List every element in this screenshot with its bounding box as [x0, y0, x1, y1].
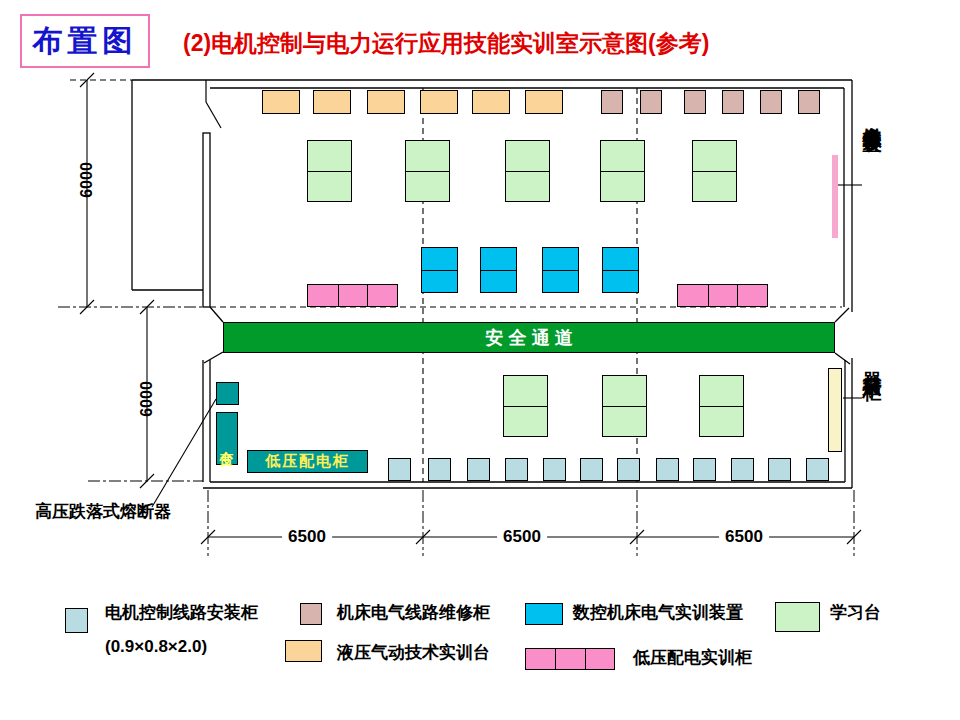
transformer-platform-box: 变台 — [216, 412, 238, 465]
dim-bay-1: 6500 — [282, 527, 332, 547]
lv-distribution-panel-box: 低压配电柜 — [247, 450, 368, 473]
dim-top-room-6000: 6000 — [78, 135, 98, 225]
dimension-lines — [80, 73, 861, 544]
dim-bay-3: 6500 — [719, 527, 769, 547]
walls — [132, 80, 852, 488]
corner-label-box: 布置图 — [20, 14, 150, 68]
corner-label: 布置图 — [33, 21, 138, 62]
multimedia-device-label: 多媒体教学装置 — [863, 112, 882, 119]
entry-door — [206, 80, 221, 128]
legend-install-label: 电机控制线路安装柜 — [105, 601, 258, 624]
legend-repair-label: 机床电气线路维修柜 — [337, 601, 490, 624]
safety-corridor-band: 安全通道 — [223, 322, 835, 353]
floor-plan-page: 安全通道 变台 低压配电柜 布置图 (2)电机控制与电力运行应用技能实训室示意图… — [0, 0, 960, 720]
lv-distribution-panel-label: 低压配电柜 — [265, 452, 350, 471]
dim-bay-2: 6500 — [497, 527, 547, 547]
display-cabinet-label: 器材展示柜 — [863, 356, 882, 371]
page-title: (2)电机控制与电力运行应用技能实训室示意图(参考) — [183, 28, 709, 59]
legend-install-size: (0.9×0.8×2.0) — [105, 637, 207, 657]
legend-cnc-label: 数控机床电气实训装置 — [573, 601, 743, 624]
dim-bottom-room-6000: 6000 — [138, 354, 158, 444]
hv-fuse-label: 高压跌落式熔断器 — [35, 500, 171, 523]
legend-table-label: 学习台 — [830, 601, 881, 624]
grid-lines-dashed — [70, 80, 842, 482]
legend-lv-label: 低压配电实训柜 — [633, 646, 752, 669]
safety-corridor-label: 安全通道 — [481, 326, 578, 350]
legend-hydraulic-label: 液压气动技术实训台 — [337, 641, 490, 664]
